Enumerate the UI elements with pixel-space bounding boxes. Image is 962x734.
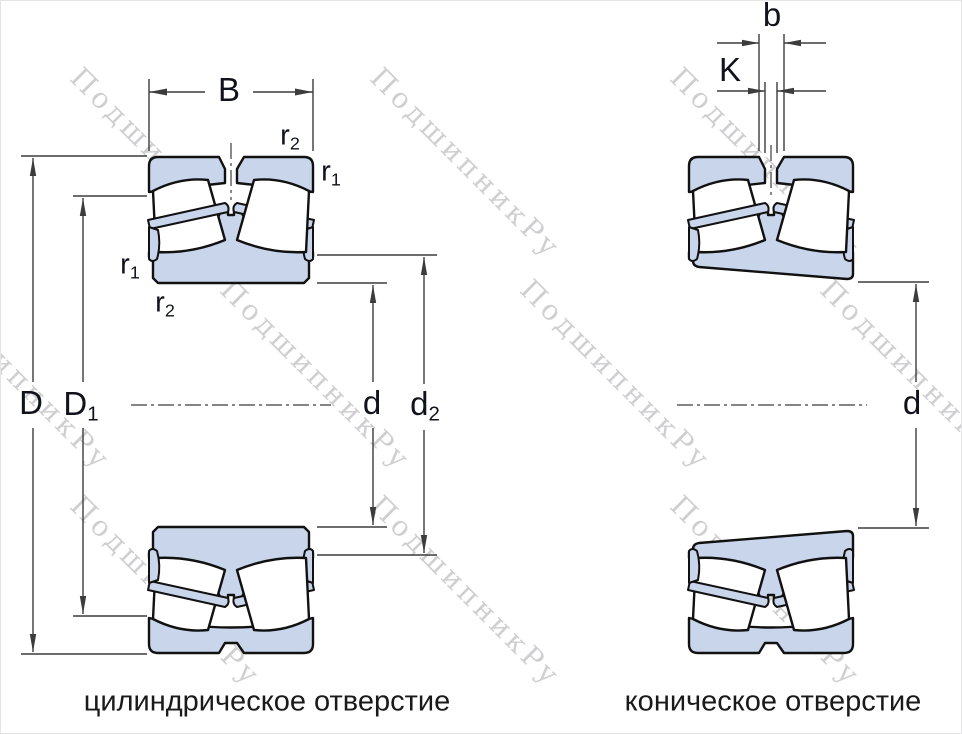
bearing-dimension-diagram: ПодшипникРу ПодшипникРу ПодшипникРу Подш… (0, 0, 962, 734)
dim-label-d-right: d (903, 386, 921, 424)
dim-label-b: b (763, 0, 781, 36)
dim-label-B: B (218, 73, 240, 111)
dim-label-r2-left: r2 (155, 288, 175, 319)
dimension-lines-right (717, 34, 929, 528)
dim-label-D: D (19, 386, 43, 424)
dim-label-K: K (719, 53, 741, 91)
dim-label-r2-top: r2 (280, 121, 300, 152)
dim-label-d: d (363, 386, 381, 424)
bearing-cross-sections (1, 1, 962, 734)
dim-label-D1: D1 (63, 387, 98, 425)
dim-label-r1-top: r1 (321, 157, 341, 188)
caption-cylindrical-bore: цилиндрическое отверстие (84, 686, 450, 719)
dim-label-r1-left: r1 (120, 250, 140, 281)
dim-label-d2: d2 (410, 387, 440, 425)
caption-tapered-bore: коническое отверстие (625, 686, 922, 719)
